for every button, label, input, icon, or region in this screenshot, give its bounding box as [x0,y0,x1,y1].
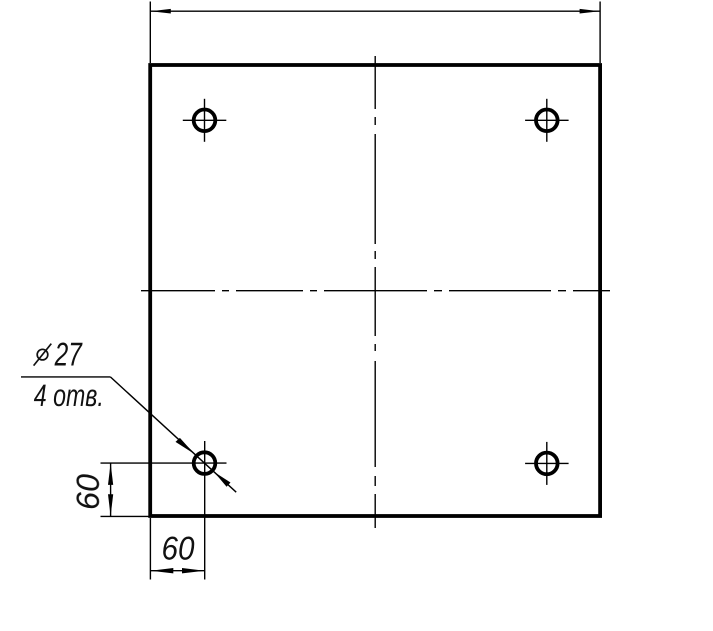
svg-text:60: 60 [162,530,196,567]
svg-text:27: 27 [54,336,83,373]
svg-text:60: 60 [70,474,106,510]
svg-text:4 отв.: 4 отв. [34,378,104,413]
